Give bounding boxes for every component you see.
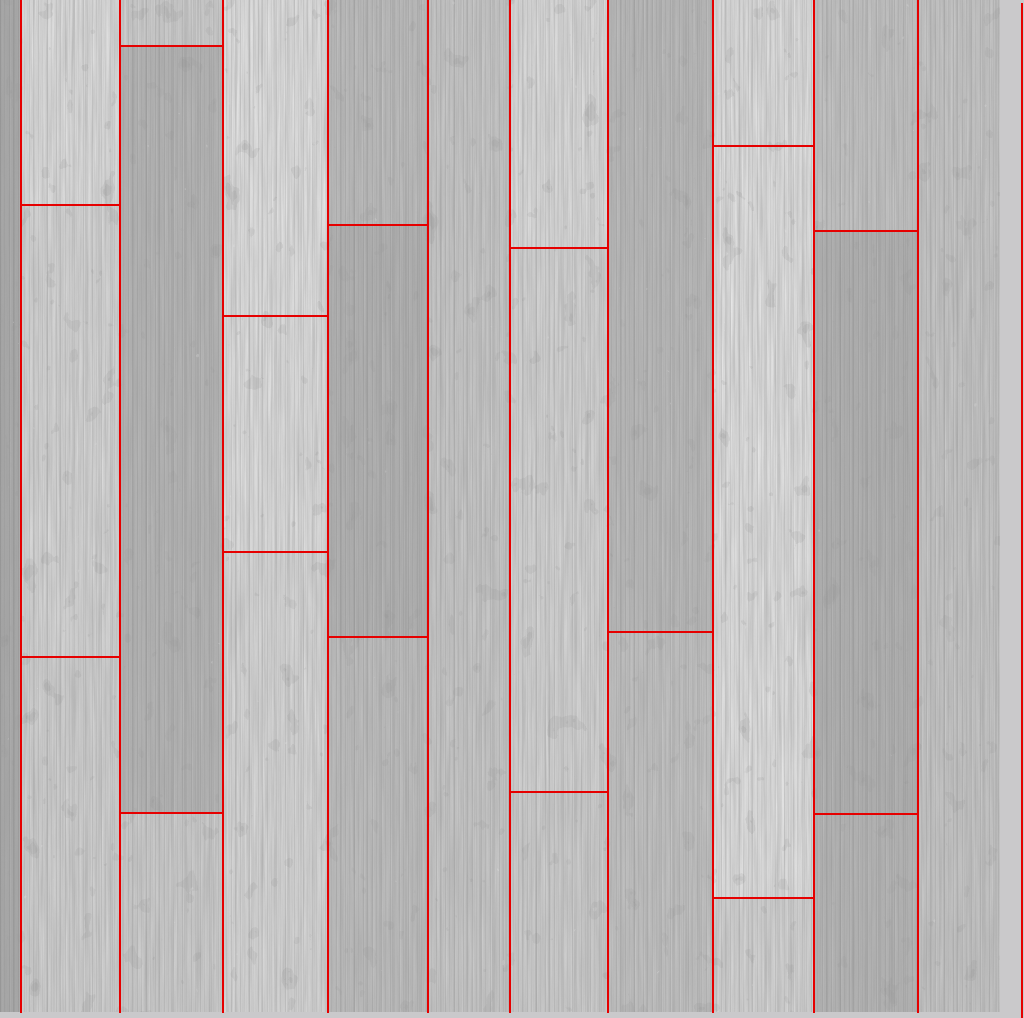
plank-boundary-vertical-line [607,0,609,1013]
plank-boundary-vertical-line [119,0,121,1013]
plank-boundary-vertical-line [712,0,714,1013]
plank-segment [20,204,119,656]
plank-segment [712,145,813,897]
bottom-gray-margin [0,1012,1024,1018]
plank-seam-horizontal-line [20,656,119,658]
wood-floor-texture-image [0,0,1024,1018]
plank-boundary-vertical-line [20,0,22,1013]
plank-segment [119,812,222,1012]
plank-seam-horizontal-line [607,631,712,633]
plank-segment [712,0,813,145]
plank-segment [119,45,222,812]
plank-seam-horizontal-line [813,230,917,232]
plank-seam-horizontal-line [20,204,119,206]
plank-seam-horizontal-line [222,315,327,317]
plank-seam-horizontal-line [119,45,222,47]
plank-segment [327,0,427,224]
plank-boundary-vertical-line [1021,3,1023,1018]
plank-segment [607,631,712,1012]
plank-segment [20,656,119,1012]
plank-segment [607,0,712,631]
plank-seam-horizontal-line [119,812,222,814]
plank-segment [119,0,222,45]
plank-segment [327,636,427,1012]
plank-texture-area [0,0,1000,1012]
plank-boundary-vertical-line [327,0,329,1013]
plank-segment [222,0,327,315]
plank-seam-horizontal-line [327,636,427,638]
plank-seam-horizontal-line [509,791,607,793]
plank-seam-horizontal-line [813,813,917,815]
plank-seam-horizontal-line [222,551,327,553]
plank-boundary-vertical-line [917,0,919,1013]
plank-segment [327,224,427,636]
plank-segment [427,0,509,1012]
plank-segment [813,813,917,1012]
plank-seam-horizontal-line [712,897,813,899]
plank-segment [222,315,327,551]
plank-boundary-vertical-line [222,0,224,1013]
plank-boundary-vertical-line [813,0,815,1013]
plank-segment [813,0,917,230]
plank-segment [0,0,20,1012]
plank-segment [222,551,327,1012]
plank-boundary-vertical-line [427,0,429,1013]
plank-segment [917,0,1000,1012]
plank-seam-horizontal-line [327,224,427,226]
plank-segment [20,0,119,204]
plank-segment [509,247,607,791]
plank-segment [813,230,917,813]
plank-segment [712,897,813,1012]
plank-segment [509,791,607,1012]
plank-segment [509,0,607,247]
plank-seam-horizontal-line [712,145,813,147]
plank-boundary-vertical-line [509,0,511,1013]
plank-seam-horizontal-line [509,247,607,249]
